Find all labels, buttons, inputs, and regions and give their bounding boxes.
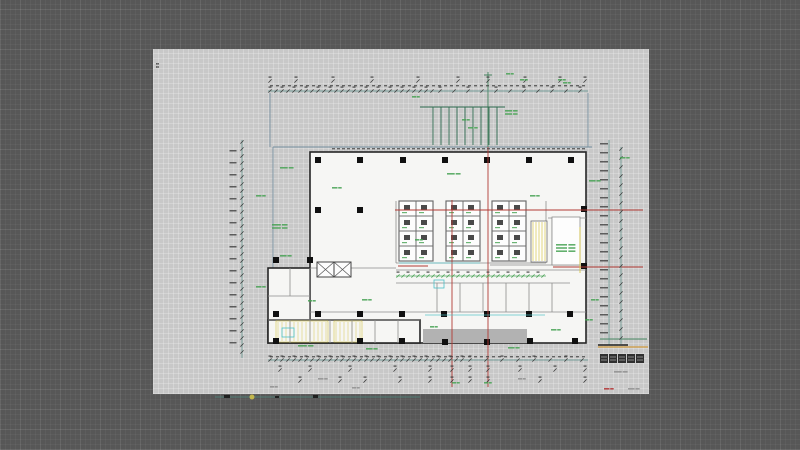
column: [273, 311, 279, 317]
column: [441, 311, 447, 317]
column: [526, 157, 532, 163]
title-glyph: [600, 354, 608, 363]
column: [315, 157, 321, 163]
column: [581, 263, 587, 269]
column: [273, 338, 279, 344]
column: [400, 157, 406, 163]
column: [484, 339, 490, 345]
annotations-gray: [270, 371, 640, 390]
title-glyph: [636, 354, 644, 363]
column: [527, 338, 533, 344]
column: [357, 311, 363, 317]
entrance-canopy: [423, 329, 527, 343]
column: [572, 338, 578, 344]
sheet-corner-marks: [156, 63, 159, 68]
cad-viewport[interactable]: [0, 0, 800, 450]
column: [567, 311, 573, 317]
title-block: [598, 345, 648, 363]
column: [315, 311, 321, 317]
ramp-railing: [420, 107, 505, 145]
title-glyph: [609, 354, 617, 363]
column: [484, 157, 490, 163]
column: [357, 207, 363, 213]
column: [568, 157, 574, 163]
scale-dot: [250, 395, 255, 400]
column: [484, 311, 490, 317]
column: [399, 311, 405, 317]
column: [273, 257, 279, 263]
column: [357, 157, 363, 163]
column: [526, 311, 532, 317]
column: [442, 157, 448, 163]
column: [357, 338, 363, 344]
annex-elevators: [317, 262, 351, 277]
stair: [531, 221, 547, 262]
floor-plan-drawing: [0, 0, 800, 450]
column: [399, 338, 405, 344]
annotations-red: [604, 388, 614, 390]
column: [315, 207, 321, 213]
scale-bar: [215, 395, 420, 400]
column: [307, 257, 313, 263]
column: [581, 206, 587, 212]
title-glyph: [627, 354, 635, 363]
column: [442, 339, 448, 345]
toilet-room: [552, 217, 580, 265]
title-glyph: [618, 354, 626, 363]
